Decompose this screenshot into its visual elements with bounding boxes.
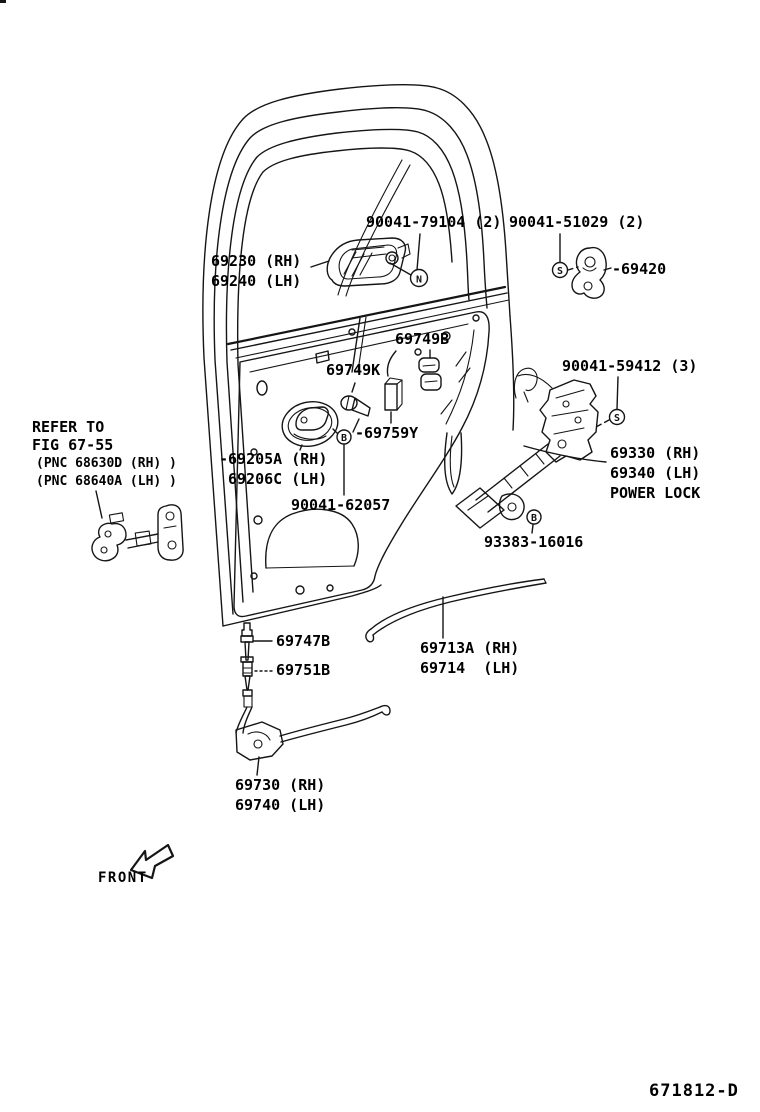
outside-handle-part: [327, 238, 410, 286]
label-lock-screw: 90041-59412 (3): [562, 357, 697, 375]
striker-part: [572, 248, 606, 299]
clip-69751b-part: [241, 657, 253, 690]
svg-text:S: S: [557, 266, 563, 277]
label-lock-cable-rh: 69730 (RH): [235, 776, 325, 794]
screw-symbol: S: [610, 410, 625, 425]
label-lock-bolt: 93383-16016: [484, 533, 583, 551]
clip-69749k-part: [341, 396, 370, 416]
door-check-part: [92, 505, 183, 561]
clip-69759y-part: [385, 378, 402, 410]
label-outside-handle-lh: 69240 (LH): [211, 272, 301, 290]
note-refer-to: REFER TO: [32, 418, 104, 436]
svg-text:N: N: [416, 275, 422, 286]
label-inside-handle-rh: -69205A (RH): [219, 450, 327, 468]
nut-symbol: N: [411, 270, 428, 287]
label-lock-lh: 69340 (LH): [610, 464, 700, 482]
label-outside-handle-rh: 69230 (RH): [211, 252, 301, 270]
bolt-symbol: B: [337, 430, 351, 444]
lock-rod-part: [366, 579, 546, 642]
label-lock-rod-rh: 69713A (RH): [420, 639, 519, 657]
label-clip-69749k: 69749K: [326, 361, 380, 379]
parts-diagram-page: { "diagram": { "figure_code": "671812-D"…: [0, 0, 760, 1112]
label-clip-69747b: 69747B: [276, 632, 330, 650]
diagram-line-art: N S S B B: [0, 0, 760, 1112]
label-striker-screw: 90041-51029 (2): [509, 213, 644, 231]
svg-text:B: B: [531, 513, 537, 524]
clip-69747b-part: [241, 623, 253, 660]
label-front: FRONT: [98, 869, 148, 887]
clip-69749b-part: [419, 358, 441, 390]
note-pnc-lh: (PNC 68640A (LH) ): [36, 473, 177, 491]
fastener-symbols: N S S B B: [337, 263, 625, 525]
note-fig: FIG 67-55: [32, 436, 113, 454]
inside-handle-part: [278, 397, 342, 452]
label-outside-handle-nut: 90041-79104 (2): [366, 213, 501, 231]
label-clip-69751b: 69751B: [276, 661, 330, 679]
lock-cable-part: [236, 690, 390, 760]
bolt-symbol: B: [527, 510, 541, 524]
note-pnc-rh: (PNC 68630D (RH) ): [36, 455, 177, 473]
label-striker: -69420: [612, 260, 666, 278]
svg-text:B: B: [341, 433, 347, 444]
label-lock-cable-lh: 69740 (LH): [235, 796, 325, 814]
label-clip-69759y: -69759Y: [355, 424, 418, 442]
label-clip-69749b: 69749B: [395, 330, 449, 348]
screw-symbol: S: [553, 263, 568, 278]
label-lock-type: POWER LOCK: [610, 484, 700, 502]
scan-artifact: [0, 0, 6, 3]
svg-text:S: S: [614, 413, 620, 424]
label-lock-rh: 69330 (RH): [610, 444, 700, 462]
label-inside-handle-bolt: 90041-62057: [291, 496, 390, 514]
label-lock-rod-lh: 69714 (LH): [420, 659, 519, 677]
label-inside-handle-lh: 69206C (LH): [228, 470, 327, 488]
figure-code: 671812-D: [649, 1082, 739, 1100]
